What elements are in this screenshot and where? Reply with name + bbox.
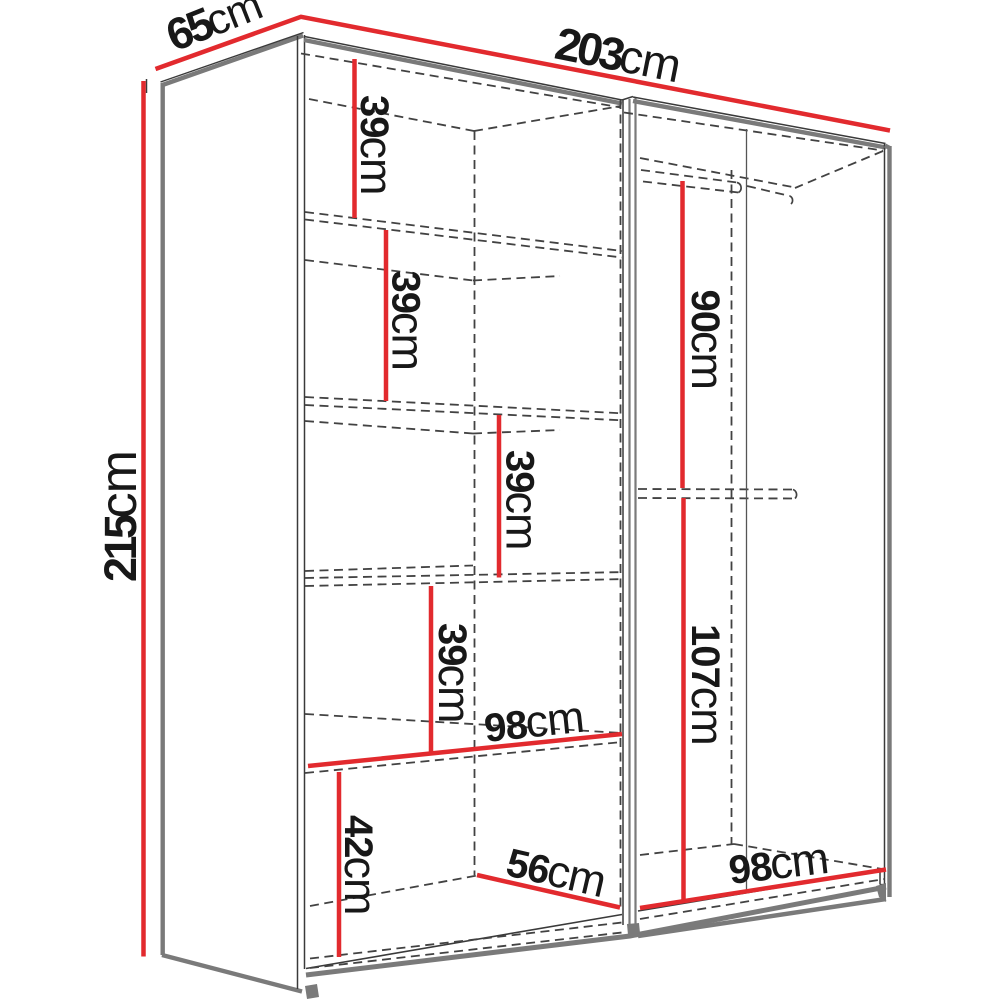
svg-text:39cm: 39cm bbox=[351, 95, 402, 195]
svg-text:39cm: 39cm bbox=[383, 271, 434, 371]
svg-text:90cm: 90cm bbox=[682, 290, 733, 390]
svg-text:39cm: 39cm bbox=[497, 450, 548, 550]
svg-text:42cm: 42cm bbox=[335, 815, 386, 915]
svg-text:39cm: 39cm bbox=[429, 623, 480, 723]
svg-text:215cm: 215cm bbox=[90, 451, 148, 582]
svg-text:107cm: 107cm bbox=[682, 624, 733, 745]
